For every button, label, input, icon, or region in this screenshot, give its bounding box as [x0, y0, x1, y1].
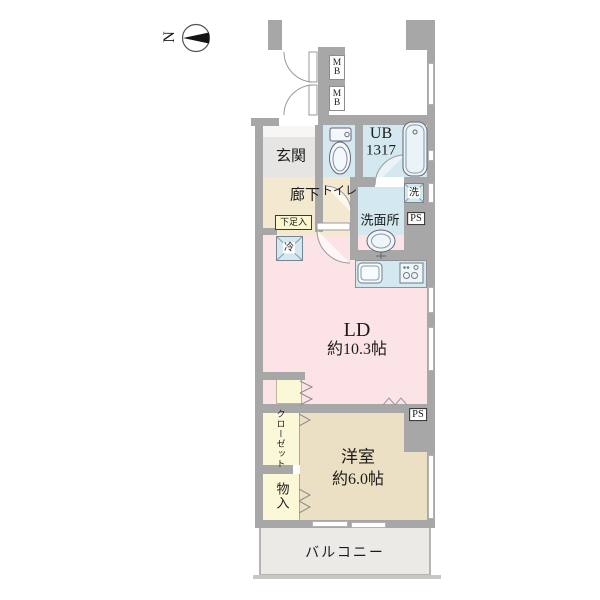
hallway-label: 廊下	[290, 188, 320, 205]
genkan-label: 玄関	[276, 149, 306, 166]
living-dining-size-label: 約10.3帖	[327, 341, 387, 359]
meter-box-upper: MB	[329, 55, 345, 80]
closet-label: クローゼット	[275, 409, 288, 469]
wall-toilet-right	[355, 125, 363, 177]
washer-label-text: 洗	[408, 187, 420, 198]
wall-ld-closet-top	[263, 372, 305, 380]
balcony-label: バルコニー	[305, 546, 385, 562]
floor-plan: MB MB 下足入	[0, 0, 600, 600]
meter-box-upper-label: MB	[332, 59, 342, 77]
wall-toilet-left	[315, 125, 323, 232]
wall-mb-top	[318, 47, 345, 55]
refrigerator-label: 冷	[283, 242, 295, 253]
window-living	[428, 327, 434, 371]
kitchen-counter	[355, 260, 427, 288]
window-kitchen	[428, 287, 434, 313]
wall-top-right-block	[406, 20, 435, 50]
ps-upper-box: PS	[407, 213, 425, 225]
meter-box-lower: MB	[329, 86, 345, 111]
wall-north	[318, 115, 433, 125]
entrance-door-icon	[284, 52, 317, 115]
toilet-label: トイレ	[321, 184, 357, 197]
wall-top-left-block	[268, 20, 282, 50]
meter-box-lower-label: MB	[332, 90, 342, 108]
compass-north-label: N	[161, 31, 179, 43]
wall-mb-column	[318, 55, 329, 115]
unit-bath-size-label: 1317	[366, 143, 396, 160]
balcony-edge	[253, 575, 441, 579]
refrigerator-label-text: 冷	[283, 242, 295, 253]
window-washer	[428, 183, 434, 203]
washer-label: 洗	[408, 187, 420, 198]
shoe-cabinet: 下足入	[275, 215, 312, 230]
compass-icon	[183, 25, 210, 52]
living-dining-label: LD	[344, 319, 371, 341]
shoe-cabinet-label: 下足入	[280, 217, 307, 227]
ld-closet	[276, 379, 302, 404]
western-room-size-label: 約6.0帖	[332, 471, 384, 489]
ps-lower-label: PS	[409, 408, 427, 421]
western-room-label: 洋室	[341, 447, 375, 466]
ps-lower-box: PS	[409, 409, 427, 421]
ps-upper-label: PS	[407, 212, 425, 225]
washroom-label: 洗面所	[360, 214, 399, 229]
wall-left	[255, 118, 263, 528]
window-bath	[428, 150, 434, 161]
storage-label: 物入	[273, 482, 292, 510]
unit-bath-label: UB	[370, 125, 392, 143]
window-porch	[428, 63, 434, 105]
balcony-door-pane-right	[351, 522, 386, 528]
window-bedroom	[428, 455, 434, 519]
balcony-door-pane-left	[312, 521, 348, 527]
